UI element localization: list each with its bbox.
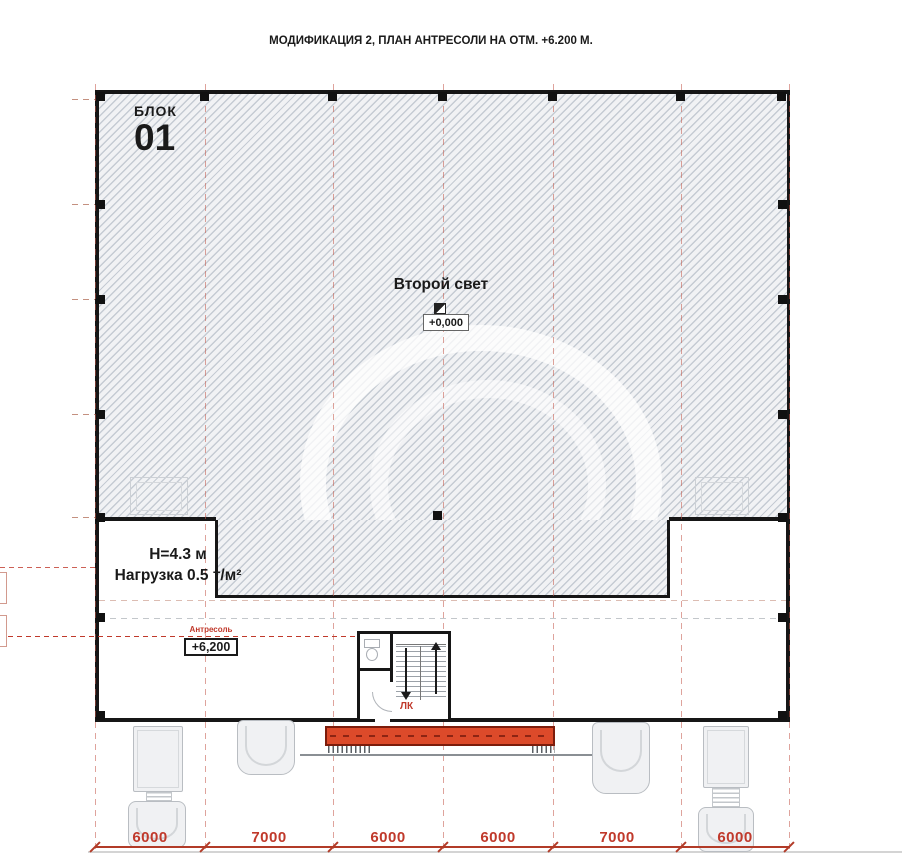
- height-note: Н=4.3 м: [96, 544, 260, 565]
- dock-comb-left: [328, 746, 372, 753]
- dimension-value: 6000: [118, 829, 182, 846]
- grid-axis-vertical: [681, 84, 682, 850]
- column-marker: [778, 513, 787, 522]
- stair-stringer: [420, 646, 421, 700]
- block-label: БЛОК 01: [134, 103, 177, 156]
- sheet-edge-line: [88, 851, 902, 853]
- stair-arrow-up-head: [431, 642, 441, 650]
- column-marker: [96, 711, 105, 720]
- drawing-title: МОДИФИКАЦИЯ 2, ПЛАН АНТРЕСОЛИ НА ОТМ. +6…: [0, 35, 862, 47]
- stair-arrow-down-head: [401, 692, 411, 700]
- column-marker: [96, 513, 105, 522]
- column-marker: [96, 200, 105, 209]
- left-dimension-clipped: 1500: [0, 615, 7, 647]
- column-marker: [778, 295, 787, 304]
- stair-room-wall: [360, 668, 393, 671]
- left-dimension-clipped: 1500: [0, 572, 7, 604]
- toilet-icon: [364, 639, 380, 648]
- elevation-zero-box: +0,000: [423, 314, 469, 331]
- dock-comb-right: [532, 746, 555, 753]
- column-marker: [778, 410, 787, 419]
- grid-line-mezzanine-upper: [0, 567, 96, 568]
- grid-axis-horizontal: [72, 517, 95, 518]
- mezzanine-level-line: [8, 636, 358, 637]
- truck-frame-icon: [712, 788, 740, 807]
- truck-trailer-icon: [703, 726, 749, 788]
- column-marker: [676, 92, 685, 101]
- stair-inner-wall: [390, 634, 393, 682]
- dimension-value: 7000: [585, 829, 649, 846]
- column-marker: [200, 92, 209, 101]
- stair-door-opening: [375, 716, 390, 725]
- column-marker: [96, 613, 105, 622]
- grid-line-mezzanine-low: [99, 618, 786, 619]
- column-marker: [96, 295, 105, 304]
- stair-arrow-down: [405, 648, 407, 694]
- grid-axis-vertical: [789, 84, 790, 850]
- block-number: 01: [134, 120, 177, 156]
- grid-axis-horizontal: [72, 204, 95, 205]
- truck-windshield-icon: [245, 726, 287, 766]
- dock-edge-line: [300, 754, 592, 756]
- truck-windshield-icon: [600, 730, 642, 772]
- dock-mid-line: [330, 735, 550, 737]
- stair-arrow-up: [435, 648, 437, 694]
- column-marker: [96, 92, 105, 101]
- mezzanine-notes: Н=4.3 м Нагрузка 0.5 т/м²: [96, 544, 260, 586]
- column-marker: [778, 711, 787, 720]
- column-marker: [778, 613, 787, 622]
- load-note: Нагрузка 0.5 т/м²: [96, 565, 260, 586]
- elevation-flag-icon: [434, 303, 446, 314]
- grid-line-mezzanine-mid: [99, 600, 786, 601]
- mezzanine-label: Антресоль: [171, 625, 251, 634]
- mezzanine-step-wall-left: [99, 517, 216, 521]
- loading-dock: [325, 726, 555, 746]
- dimension-value: 6000: [703, 829, 767, 846]
- column-marker: [96, 410, 105, 419]
- column-marker: [548, 92, 557, 101]
- mezzanine-step-wall-right: [669, 517, 787, 521]
- dimension-value: 6000: [466, 829, 530, 846]
- grid-axis-vertical: [205, 84, 206, 850]
- dimension-value: 7000: [237, 829, 301, 846]
- dock-leveler-left: [130, 477, 188, 515]
- grid-axis-vertical: [95, 84, 96, 850]
- grid-axis-horizontal: [72, 299, 95, 300]
- dock-leveler-right: [695, 477, 749, 515]
- dimension-value: 6000: [356, 829, 420, 846]
- grid-axis-horizontal: [72, 414, 95, 415]
- column-marker: [438, 92, 447, 101]
- column-marker: [433, 511, 442, 520]
- second-light-label: Второй свет: [366, 274, 516, 295]
- column-marker: [328, 92, 337, 101]
- stair-core: ЛК: [357, 631, 451, 722]
- mezzanine-elevation-box: +6,200: [184, 638, 238, 656]
- truck-trailer-icon: [133, 726, 183, 792]
- door-swing-arc: [372, 692, 392, 712]
- column-marker: [778, 200, 787, 209]
- floor-plan-page: МОДИФИКАЦИЯ 2, ПЛАН АНТРЕСОЛИ НА ОТМ. +6…: [0, 0, 902, 854]
- column-marker: [777, 92, 786, 101]
- stair-label: ЛК: [400, 701, 413, 712]
- toilet-bowl-icon: [366, 648, 378, 661]
- grid-axis-horizontal: [72, 99, 95, 100]
